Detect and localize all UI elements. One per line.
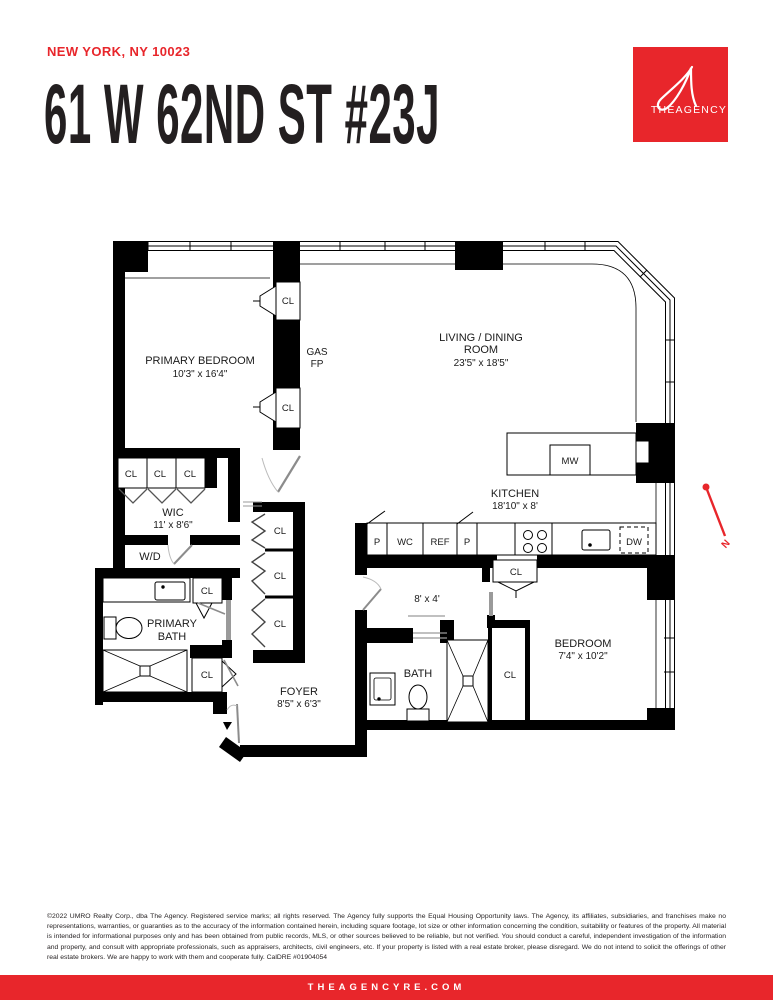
primary-bedroom-label: PRIMARY BEDROOM bbox=[145, 355, 255, 367]
accordion-door-3 bbox=[252, 599, 265, 647]
footer-website: THEAGENCYRE.COM bbox=[308, 982, 466, 993]
closet-label: CL bbox=[274, 619, 286, 630]
closet-label: CL bbox=[184, 469, 196, 480]
closet-label: CL bbox=[274, 571, 286, 582]
microwave-label: MW bbox=[562, 456, 579, 467]
closet-label: CL bbox=[154, 469, 166, 480]
north-label: N bbox=[720, 538, 733, 551]
gas-fp-label2: FP bbox=[311, 359, 324, 370]
bath-label: BATH bbox=[404, 668, 433, 680]
closet-label: CL bbox=[282, 296, 294, 307]
toilet2 bbox=[409, 685, 427, 709]
footer-bar: THEAGENCYRE.COM bbox=[0, 975, 773, 1000]
accordion-door-1 bbox=[252, 514, 265, 548]
legal-disclaimer: ©2022 UMRO Realty Corp., dba The Agency.… bbox=[47, 912, 726, 963]
kitchen-dims: 18'10" x 8' bbox=[492, 501, 538, 512]
living-dining-label: LIVING / DINING bbox=[439, 332, 523, 344]
primary-bedroom-dims: 10'3" x 16'4" bbox=[173, 369, 228, 380]
refrigerator-label: REF bbox=[431, 537, 450, 548]
bedroom-door-leaf bbox=[489, 592, 493, 616]
foyer-label: FOYER bbox=[280, 686, 318, 698]
kitchen-label: KITCHEN bbox=[491, 488, 539, 500]
bath-pocket-door bbox=[226, 600, 231, 640]
flyer-page: NEW YORK, NY 10023 61 W 62ND ST #23J THE… bbox=[0, 0, 773, 1000]
primary-bath-label2: BATH bbox=[158, 631, 187, 643]
gas-fp-label: GAS bbox=[306, 347, 327, 358]
closet-label: CL bbox=[504, 670, 516, 681]
floor-plan: N PRIMARY BEDROOM 10'3" x 16'4" LIVING /… bbox=[0, 0, 773, 1000]
closet-label: CL bbox=[125, 469, 137, 480]
bedroom-label: BEDROOM bbox=[555, 638, 612, 650]
laundry-door bbox=[174, 545, 192, 564]
foyer-dims: 8'5" x 6'3" bbox=[277, 699, 321, 710]
accordion-door-2 bbox=[252, 553, 265, 594]
pantry-label: P bbox=[464, 537, 470, 548]
living-dining-dims: 23'5" x 18'5" bbox=[454, 358, 509, 369]
hall-dims: 8' x 4' bbox=[414, 594, 440, 605]
closet-label: CL bbox=[282, 403, 294, 414]
entry-door bbox=[237, 704, 239, 743]
primary-bath-label: PRIMARY bbox=[147, 618, 198, 630]
bedroom-dims: 7'4" x 10'2" bbox=[558, 651, 608, 662]
wic-bifold-doors bbox=[119, 489, 205, 503]
north-arrow: N bbox=[703, 484, 733, 551]
closet-label: CL bbox=[510, 567, 522, 578]
water-closet-label: WC bbox=[397, 537, 413, 548]
shower bbox=[103, 650, 187, 692]
dishwasher-label: DW bbox=[626, 537, 642, 548]
primary-suite-door bbox=[278, 456, 300, 492]
toilet-tank bbox=[104, 617, 116, 639]
wd-label: W/D bbox=[139, 551, 160, 563]
living-dining-label2: ROOM bbox=[464, 344, 498, 356]
toilet bbox=[116, 618, 142, 639]
hall-door bbox=[363, 589, 381, 610]
closet-label: CL bbox=[201, 670, 213, 681]
wic-label: WIC bbox=[162, 507, 183, 519]
closet-label: CL bbox=[201, 586, 213, 597]
wic-dims: 11' x 8'6" bbox=[153, 520, 193, 531]
shower2 bbox=[447, 640, 488, 722]
closet-label: CL bbox=[274, 526, 286, 537]
pantry-label: P bbox=[374, 537, 380, 548]
